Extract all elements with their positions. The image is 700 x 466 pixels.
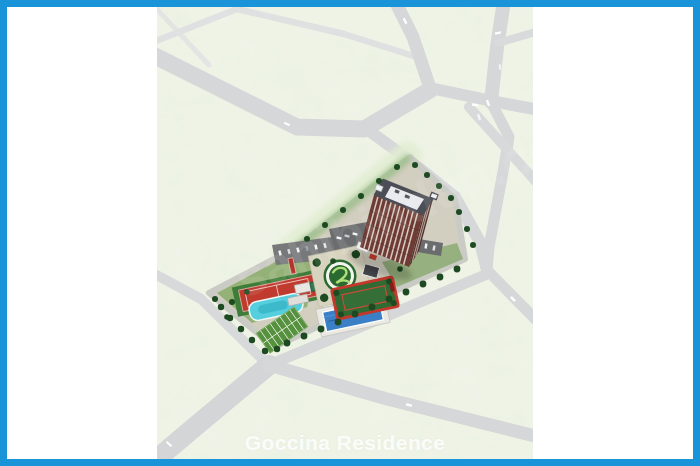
site-plan-graphic: sahibinden.com: [157, 7, 533, 459]
site-plan-photo: sahibinden.com Goccina Residence: [157, 7, 533, 459]
photo-frame: sahibinden.com Goccina Residence: [0, 0, 700, 466]
